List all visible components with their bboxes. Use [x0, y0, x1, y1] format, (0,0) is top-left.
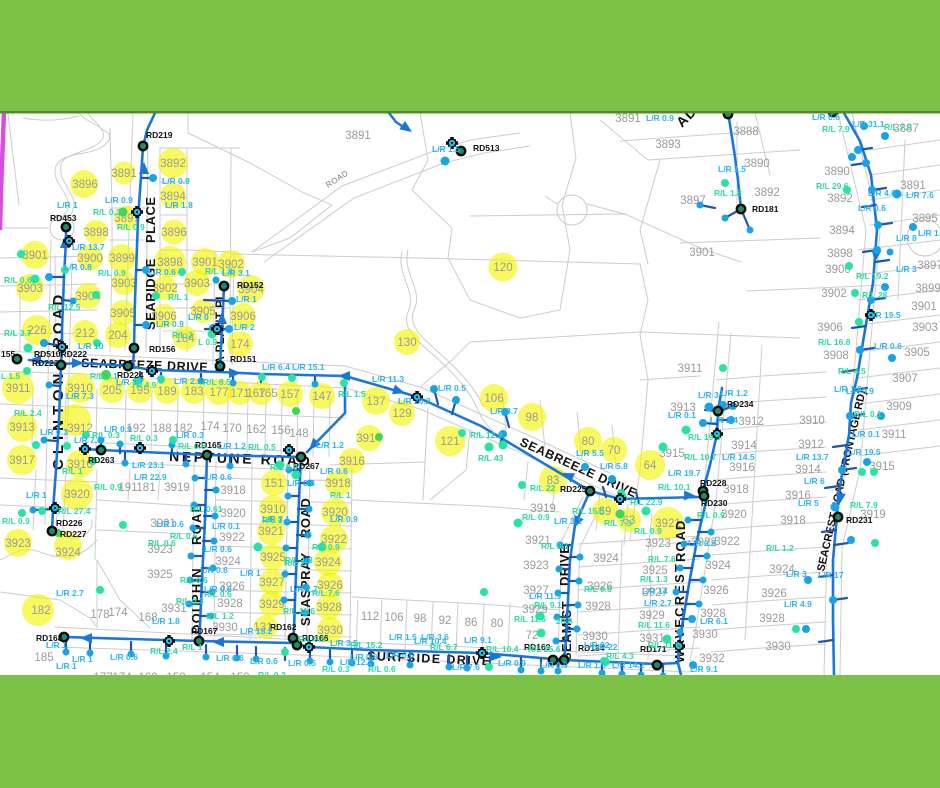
svg-text:70: 70: [608, 445, 621, 457]
svg-text:L/R 18.2: L/R 18.2: [240, 626, 273, 636]
svg-text:L/R 0.8: L/R 0.8: [64, 262, 92, 272]
svg-text:R/L 9.5: R/L 9.5: [298, 634, 326, 644]
svg-text:R/L 1.2: R/L 1.2: [206, 611, 234, 621]
svg-text:174: 174: [108, 607, 128, 619]
svg-text:3888: 3888: [733, 126, 759, 138]
svg-text:3899: 3899: [915, 283, 940, 295]
svg-text:RD219: RD219: [146, 130, 173, 140]
svg-text:L/R 22: L/R 22: [592, 642, 618, 652]
svg-text:L 0.9: L 0.9: [198, 337, 217, 347]
svg-text:3927: 3927: [259, 577, 285, 589]
svg-text:L/R 5: L/R 5: [798, 498, 819, 508]
svg-text:R/L 0.6: R/L 0.6: [584, 584, 612, 594]
svg-text:177: 177: [209, 387, 228, 399]
svg-text:3911: 3911: [678, 363, 703, 375]
svg-text:L/R 0.9: L/R 0.9: [646, 113, 674, 123]
svg-text:L/R 2: L/R 2: [234, 322, 255, 332]
svg-text:64: 64: [644, 460, 657, 472]
svg-text:92: 92: [439, 615, 452, 627]
svg-text:3917: 3917: [9, 455, 35, 467]
svg-text:R/L 0.9: R/L 0.9: [312, 542, 340, 552]
svg-text:R/L 0.6: R/L 0.6: [4, 275, 32, 285]
svg-text:R/L 1.3: R/L 1.3: [640, 574, 668, 584]
svg-text:RD225: RD225: [560, 484, 587, 494]
svg-text:L/R 3: L/R 3: [896, 264, 917, 274]
svg-text:86: 86: [465, 617, 478, 629]
svg-text:3924: 3924: [55, 547, 81, 559]
svg-text:L/R 6: L/R 6: [804, 476, 825, 486]
svg-text:3905: 3905: [110, 308, 136, 320]
svg-text:L/R 0.1: L/R 0.1: [668, 410, 696, 420]
svg-text:R/L 0.3: R/L 0.3: [93, 207, 121, 217]
svg-text:3928: 3928: [585, 601, 611, 613]
svg-text:3897: 3897: [917, 260, 940, 272]
svg-text:3923: 3923: [5, 538, 31, 550]
svg-text:RD152: RD152: [237, 280, 264, 290]
svg-text:L/R 1.5: L/R 1.5: [578, 660, 606, 670]
svg-text:80: 80: [491, 618, 504, 630]
svg-text:3898: 3898: [827, 248, 853, 260]
svg-text:R/L 7.6: R/L 7.6: [312, 588, 340, 598]
svg-text:RD226: RD226: [56, 518, 83, 528]
svg-text:R/L 0.3: R/L 0.3: [176, 596, 204, 606]
svg-text:R/L 28: R/L 28: [862, 290, 888, 300]
svg-text:L/R 6.1: L/R 6.1: [700, 616, 728, 626]
svg-text:L/R 0.6: L/R 0.6: [320, 466, 348, 476]
svg-text:3924: 3924: [315, 557, 341, 569]
svg-text:RD234: RD234: [727, 399, 754, 409]
svg-text:L/R 0.5: L/R 0.5: [288, 658, 316, 668]
svg-text:R/L 10.1: R/L 10.1: [658, 482, 691, 492]
svg-text:R/L 0.9: R/L 0.9: [697, 510, 725, 520]
svg-text:3916: 3916: [729, 462, 755, 474]
svg-text:L/R 7.6: L/R 7.6: [74, 435, 102, 445]
svg-text:L/R 1: L/R 1: [57, 200, 78, 210]
svg-text:L/R 0.6: L/R 0.6: [156, 519, 184, 529]
svg-text:L/R 3.1: L/R 3.1: [262, 514, 290, 524]
svg-text:L/R 0.6: L/R 0.6: [148, 267, 176, 277]
svg-text:R 4.9: R 4.9: [136, 380, 157, 390]
svg-text:R/L 22.9: R/L 22.9: [630, 497, 663, 507]
svg-text:204: 204: [108, 330, 128, 342]
svg-text:3891: 3891: [615, 113, 641, 125]
svg-text:L/R 14: L/R 14: [642, 586, 668, 596]
svg-text:3905: 3905: [904, 347, 930, 359]
svg-text:R/L 2.4: R/L 2.4: [150, 646, 178, 656]
svg-text:R/L 0.6: R/L 0.6: [178, 441, 206, 451]
svg-text:R/L 15.2: R/L 15.2: [350, 640, 383, 650]
svg-text:3928: 3928: [759, 613, 785, 625]
svg-text:RD167: RD167: [191, 626, 218, 636]
svg-text:L/R 20.2: L/R 20.2: [398, 396, 431, 406]
svg-text:L/R 4.6: L/R 4.6: [868, 188, 896, 198]
svg-text:L/R 11.3: L/R 11.3: [372, 374, 404, 384]
svg-text:L/R 0.6: L/R 0.6: [204, 472, 232, 482]
svg-text:3911: 3911: [882, 429, 907, 441]
svg-text:L/R 0.9: L/R 0.9: [104, 424, 132, 434]
svg-text:ROAD: ROAD: [298, 498, 313, 538]
svg-text:3896: 3896: [72, 179, 98, 191]
svg-text:3920: 3920: [64, 489, 90, 501]
svg-text:185: 185: [34, 652, 53, 664]
svg-text:178: 178: [90, 609, 109, 621]
svg-text:L/R 9.1: L/R 9.1: [690, 664, 718, 674]
svg-text:120: 120: [493, 262, 512, 274]
svg-text:3918: 3918: [723, 484, 749, 496]
svg-text:L/R 19.5: L/R 19.5: [868, 310, 901, 320]
svg-text:3920: 3920: [220, 508, 246, 520]
svg-text:3928: 3928: [217, 598, 243, 610]
svg-text:3912: 3912: [738, 416, 764, 428]
svg-text:L/R 1: L/R 1: [236, 294, 257, 304]
svg-text:L/R 0: L/R 0: [188, 312, 209, 322]
svg-text:3901: 3901: [22, 250, 48, 262]
svg-text:R/L 25.6: R/L 25.6: [528, 644, 561, 654]
svg-text:L/R 0.6: L/R 0.6: [858, 203, 886, 213]
svg-text:3911: 3911: [6, 383, 31, 395]
svg-text:R/L 0.1: R/L 0.1: [854, 409, 882, 419]
svg-text:3892: 3892: [827, 193, 853, 205]
svg-text:L/R 19.7: L/R 19.7: [668, 468, 701, 478]
svg-text:L/R 2.4: L/R 2.4: [710, 415, 738, 425]
svg-text:R/L 9.1: R/L 9.1: [534, 600, 562, 610]
svg-text:L/R 14.2: L/R 14.2: [612, 660, 645, 670]
svg-text:121: 121: [440, 436, 459, 448]
svg-text:L/R 0.5: L/R 0.5: [438, 383, 466, 393]
svg-text:R/L 10.4: R/L 10.4: [486, 644, 519, 654]
svg-text:R/L 11.6: R/L 11.6: [648, 640, 680, 650]
svg-text:L/R 3.1: L/R 3.1: [222, 268, 250, 278]
svg-text:3918: 3918: [325, 478, 351, 490]
svg-text:L/R 14.5: L/R 14.5: [722, 452, 755, 462]
svg-text:L/R 1: L/R 1: [26, 490, 47, 500]
svg-text:3925: 3925: [260, 552, 286, 564]
svg-text:L/R 0.3: L/R 0.3: [176, 430, 204, 440]
svg-text:L/R 0.6: L/R 0.6: [200, 565, 228, 575]
svg-text:RD228: RD228: [700, 478, 727, 488]
svg-text:PLACE: PLACE: [143, 196, 158, 243]
svg-text:3899: 3899: [109, 253, 135, 265]
svg-text:L/R 6.4: L/R 6.4: [262, 362, 290, 372]
svg-text:R/L 16.8: R/L 16.8: [818, 337, 851, 347]
svg-text:3909: 3909: [886, 401, 912, 413]
svg-text:R/L 0.9: R/L 0.9: [270, 462, 298, 472]
svg-text:3918: 3918: [220, 485, 246, 497]
svg-text:155: 155: [1, 349, 15, 359]
svg-text:3912: 3912: [798, 439, 824, 451]
svg-text:212: 212: [75, 328, 94, 340]
svg-text:L/R 10: L/R 10: [78, 341, 104, 351]
svg-text:3928: 3928: [316, 602, 342, 614]
svg-text:R/L 1.5: R/L 1.5: [338, 389, 366, 399]
svg-text:L/R 8: L/R 8: [896, 233, 917, 243]
svg-text:RD223: RD223: [32, 358, 59, 368]
svg-text:R/L 3.1: R/L 3.1: [90, 371, 118, 381]
svg-text:L/R 0.6: L/R 0.6: [110, 652, 138, 662]
svg-text:3914: 3914: [731, 440, 757, 452]
svg-text:L/R 0.6: L/R 0.6: [287, 478, 315, 488]
svg-text:3894: 3894: [829, 225, 855, 237]
svg-text:R/L 0.9: R/L 0.9: [634, 526, 662, 536]
svg-text:3892: 3892: [754, 187, 780, 199]
svg-text:R/L 2.4: R/L 2.4: [14, 408, 42, 418]
svg-text:3914: 3914: [795, 464, 821, 476]
svg-text:L/R 13.7: L/R 13.7: [796, 452, 829, 462]
svg-text:L/R 0.6: L/R 0.6: [204, 544, 232, 554]
svg-text:3922: 3922: [219, 532, 245, 544]
svg-text:RD151: RD151: [230, 354, 257, 364]
svg-text:3890: 3890: [744, 158, 770, 170]
svg-text:3903: 3903: [111, 278, 137, 290]
svg-text:137: 137: [366, 396, 385, 408]
svg-text:L/R 0.9: L/R 0.9: [162, 176, 190, 186]
svg-text:106: 106: [384, 612, 403, 624]
svg-text:L/R 17: L/R 17: [818, 570, 844, 580]
svg-text:L/R 13.7: L/R 13.7: [72, 242, 105, 252]
svg-text:R/L 7.9: R/L 7.9: [822, 124, 850, 134]
svg-text:RD453: RD453: [50, 213, 77, 223]
svg-text:R/L 2: R/L 2: [172, 330, 193, 340]
svg-text:189: 189: [157, 386, 176, 398]
svg-text:148: 148: [289, 428, 308, 440]
svg-text:L/R 10.4: L/R 10.4: [414, 636, 447, 646]
svg-text:R/L 10.7: R/L 10.7: [684, 452, 717, 462]
svg-text:3923: 3923: [523, 560, 549, 572]
svg-text:183: 183: [184, 386, 203, 398]
svg-text:3903: 3903: [912, 322, 938, 334]
svg-text:L/R 0.6: L/R 0.6: [204, 584, 232, 594]
svg-text:R/L 12.9: R/L 12.9: [470, 430, 503, 440]
svg-text:R/L 7.9: R/L 7.9: [884, 122, 912, 132]
svg-text:174: 174: [230, 339, 250, 351]
svg-text:L/R 1: L/R 1: [72, 654, 93, 664]
svg-text:L 1.5: L 1.5: [1, 371, 20, 381]
svg-text:181: 181: [136, 482, 155, 494]
svg-text:R/L 0.9: R/L 0.9: [522, 512, 550, 522]
svg-text:L/R 1.5: L/R 1.5: [389, 632, 417, 642]
svg-text:R/L 11.6: R/L 11.6: [638, 620, 670, 630]
svg-text:L/R 0.9: L/R 0.9: [540, 660, 568, 670]
svg-text:L/R 4.9: L/R 4.9: [784, 599, 812, 609]
svg-text:L/R 1.2: L/R 1.2: [218, 441, 246, 451]
svg-text:3920: 3920: [721, 509, 747, 521]
svg-text:3907: 3907: [892, 373, 918, 385]
svg-text:3924: 3924: [705, 560, 731, 572]
svg-text:L/R 0.1: L/R 0.1: [852, 429, 880, 439]
svg-text:L/R 19.5: L/R 19.5: [848, 447, 881, 457]
svg-text:L/R 3.1: L/R 3.1: [554, 516, 582, 526]
svg-text:RD227: RD227: [60, 529, 87, 539]
svg-text:L/R 1.8: L/R 1.8: [165, 200, 193, 210]
svg-text:3919: 3919: [164, 482, 190, 494]
svg-text:106: 106: [484, 393, 503, 405]
svg-text:162: 162: [246, 424, 265, 436]
svg-text:R/L 0.5: R/L 0.5: [248, 442, 276, 452]
svg-text:3906: 3906: [817, 322, 843, 334]
svg-text:R/L 0.9: R/L 0.9: [117, 222, 145, 232]
svg-text:72: 72: [526, 630, 539, 642]
svg-text:R/L 12.5: R/L 12.5: [48, 302, 81, 312]
svg-text:RD513: RD513: [473, 143, 500, 153]
svg-text:R/L 4.5: R/L 4.5: [838, 366, 866, 376]
svg-text:R/L 0.9: R/L 0.9: [98, 268, 126, 278]
svg-text:3890: 3890: [824, 166, 850, 178]
svg-text:112: 112: [361, 611, 379, 623]
svg-text:R/L 7.3: R/L 7.3: [604, 518, 632, 528]
svg-text:182: 182: [31, 605, 50, 617]
svg-text:L/R 3.7: L/R 3.7: [490, 406, 518, 416]
svg-text:R/L 0.6: R/L 0.6: [148, 538, 176, 548]
svg-text:3926: 3926: [761, 588, 787, 600]
svg-text:157: 157: [280, 389, 299, 401]
svg-text:RD263: RD263: [88, 455, 115, 465]
svg-text:L/R 22.9: L/R 22.9: [134, 472, 167, 482]
svg-text:L/R 0.6: L/R 0.6: [250, 656, 278, 666]
svg-text:129: 129: [392, 408, 411, 420]
svg-text:3898: 3898: [83, 227, 109, 239]
svg-text:L/R 7.3: L/R 7.3: [66, 391, 94, 401]
svg-text:3926: 3926: [703, 585, 729, 597]
svg-text:L/R 1.5: L/R 1.5: [432, 144, 460, 154]
svg-text:L/R 0.9: L/R 0.9: [846, 386, 874, 396]
svg-text:3930: 3930: [692, 629, 718, 641]
svg-text:L/R 0.9: L/R 0.9: [156, 319, 184, 329]
svg-text:R/L 7.9: R/L 7.9: [850, 500, 878, 510]
svg-text:L/R 15.1: L/R 15.1: [292, 362, 325, 372]
svg-text:RD231: RD231: [846, 515, 873, 525]
svg-text:L/R 7.6: L/R 7.6: [452, 662, 480, 672]
svg-text:RD230: RD230: [701, 498, 728, 508]
svg-text:R/L 0.61: R/L 0.61: [190, 504, 223, 514]
svg-text:L/R 3: L/R 3: [698, 390, 719, 400]
svg-text:R/L 9.1: R/L 9.1: [541, 541, 569, 551]
svg-text:L/R 1.2: L/R 1.2: [316, 440, 344, 450]
svg-text:L/R 1: L/R 1: [918, 228, 939, 238]
svg-text:3901: 3901: [911, 301, 937, 313]
svg-text:165: 165: [258, 388, 277, 400]
svg-text:3922: 3922: [714, 536, 740, 548]
svg-text:98: 98: [526, 412, 539, 424]
svg-text:170: 170: [222, 423, 241, 435]
svg-text:3910: 3910: [799, 415, 825, 427]
svg-text:3892: 3892: [160, 158, 186, 170]
svg-text:L/R 1: L/R 1: [240, 568, 261, 578]
svg-text:R/L 27.4: R/L 27.4: [58, 506, 91, 516]
svg-text:3930: 3930: [765, 641, 791, 653]
svg-text:L/R 0.9: L/R 0.9: [330, 514, 358, 524]
svg-text:L/R 2.7: L/R 2.7: [644, 598, 672, 608]
svg-text:L/R 23.1: L/R 23.1: [132, 460, 165, 470]
svg-text:L/R 1.5: L/R 1.5: [718, 164, 746, 174]
svg-text:L/R 1.2: L/R 1.2: [720, 388, 748, 398]
svg-text:R/L 1: R/L 1: [182, 642, 203, 652]
svg-text:RD181: RD181: [752, 204, 779, 214]
svg-text:80: 80: [582, 436, 595, 448]
svg-text:R/L 3.7: R/L 3.7: [4, 328, 32, 338]
svg-text:3923: 3923: [645, 538, 671, 550]
svg-text:RD162: RD162: [270, 622, 297, 632]
svg-text:3901: 3901: [689, 247, 715, 259]
svg-text:R/L 19.2: R/L 19.2: [856, 271, 889, 281]
svg-text:L/R 1: L/R 1: [46, 640, 67, 650]
svg-text:L/R 0.9: L/R 0.9: [498, 658, 526, 668]
svg-text:R/L 1: R/L 1: [168, 292, 189, 302]
svg-text:R/L 1: R/L 1: [62, 466, 83, 476]
svg-text:3925: 3925: [147, 569, 173, 581]
svg-text:L/R 12.2: L/R 12.2: [340, 657, 373, 667]
svg-text:L/R 0.9: L/R 0.9: [688, 538, 716, 548]
svg-text:R/L 19.5: R/L 19.5: [688, 432, 721, 442]
svg-text:L/R 0.9: L/R 0.9: [105, 195, 133, 205]
svg-text:3908: 3908: [823, 350, 849, 362]
svg-text:RD156: RD156: [149, 344, 176, 354]
svg-text:3896: 3896: [161, 227, 187, 239]
svg-text:R/L 8.5: R/L 8.5: [203, 377, 231, 387]
svg-text:L/R 5.8: L/R 5.8: [600, 461, 628, 471]
svg-text:R/L 0.3: R/L 0.3: [130, 433, 158, 443]
svg-text:L/R 0.3: L/R 0.3: [40, 427, 68, 437]
svg-text:R/L 7.6: R/L 7.6: [648, 554, 676, 564]
svg-text:147: 147: [312, 391, 331, 403]
svg-text:L/R 3: L/R 3: [786, 569, 807, 579]
svg-text:L/R 0.6: L/R 0.6: [216, 653, 244, 663]
svg-text:R/L 29.6: R/L 29.6: [816, 181, 849, 191]
svg-text:151: 151: [264, 478, 283, 490]
svg-text:3891: 3891: [111, 168, 137, 180]
svg-text:98: 98: [414, 613, 427, 625]
svg-text:L/R 0.6: L/R 0.6: [874, 341, 902, 351]
svg-text:R/L 1.8: R/L 1.8: [714, 188, 742, 198]
svg-text:R/L 0.9: R/L 0.9: [2, 516, 30, 526]
svg-text:R/L 43: R/L 43: [478, 453, 504, 463]
svg-text:R/L 15.5: R/L 15.5: [572, 506, 605, 516]
svg-text:156: 156: [271, 425, 290, 437]
svg-text:L/R 31.1: L/R 31.1: [852, 119, 885, 129]
svg-text:3902: 3902: [821, 288, 847, 300]
svg-text:R/L 22: R/L 22: [530, 483, 556, 493]
svg-text:130: 130: [397, 337, 416, 349]
svg-text:L/R 0.1: L/R 0.1: [212, 521, 240, 531]
svg-text:R/L 11.6: R/L 11.6: [514, 614, 546, 624]
svg-text:3891: 3891: [345, 130, 371, 142]
svg-text:L/R 9.1: L/R 9.1: [464, 635, 492, 645]
svg-text:R/L 1.3: R/L 1.3: [285, 555, 313, 565]
svg-text:L/R 2.1: L/R 2.1: [174, 376, 202, 386]
svg-text:R/L 11.6: R/L 11.6: [283, 606, 315, 616]
svg-text:R/L 1.2: R/L 1.2: [766, 543, 794, 553]
svg-text:20.6: 20.6: [556, 616, 573, 626]
svg-text:L/R 2.7: L/R 2.7: [56, 588, 84, 598]
svg-text:L/R 5.5: L/R 5.5: [576, 448, 604, 458]
svg-text:3893: 3893: [655, 139, 681, 151]
svg-text:3913: 3913: [9, 422, 35, 434]
svg-text:L/R 1.8: L/R 1.8: [152, 616, 180, 626]
svg-text:3895: 3895: [912, 213, 938, 225]
svg-text:L/R 0.6: L/R 0.6: [386, 650, 414, 660]
svg-text:3918: 3918: [780, 515, 806, 527]
svg-text:3924: 3924: [593, 553, 619, 565]
svg-text:L/R 7.6: L/R 7.6: [906, 190, 934, 200]
svg-text:R/L 1: R/L 1: [330, 490, 351, 500]
svg-text:3921: 3921: [258, 526, 284, 538]
svg-text:3903: 3903: [184, 278, 210, 290]
svg-text:R/L 0.9: R/L 0.9: [94, 482, 122, 492]
